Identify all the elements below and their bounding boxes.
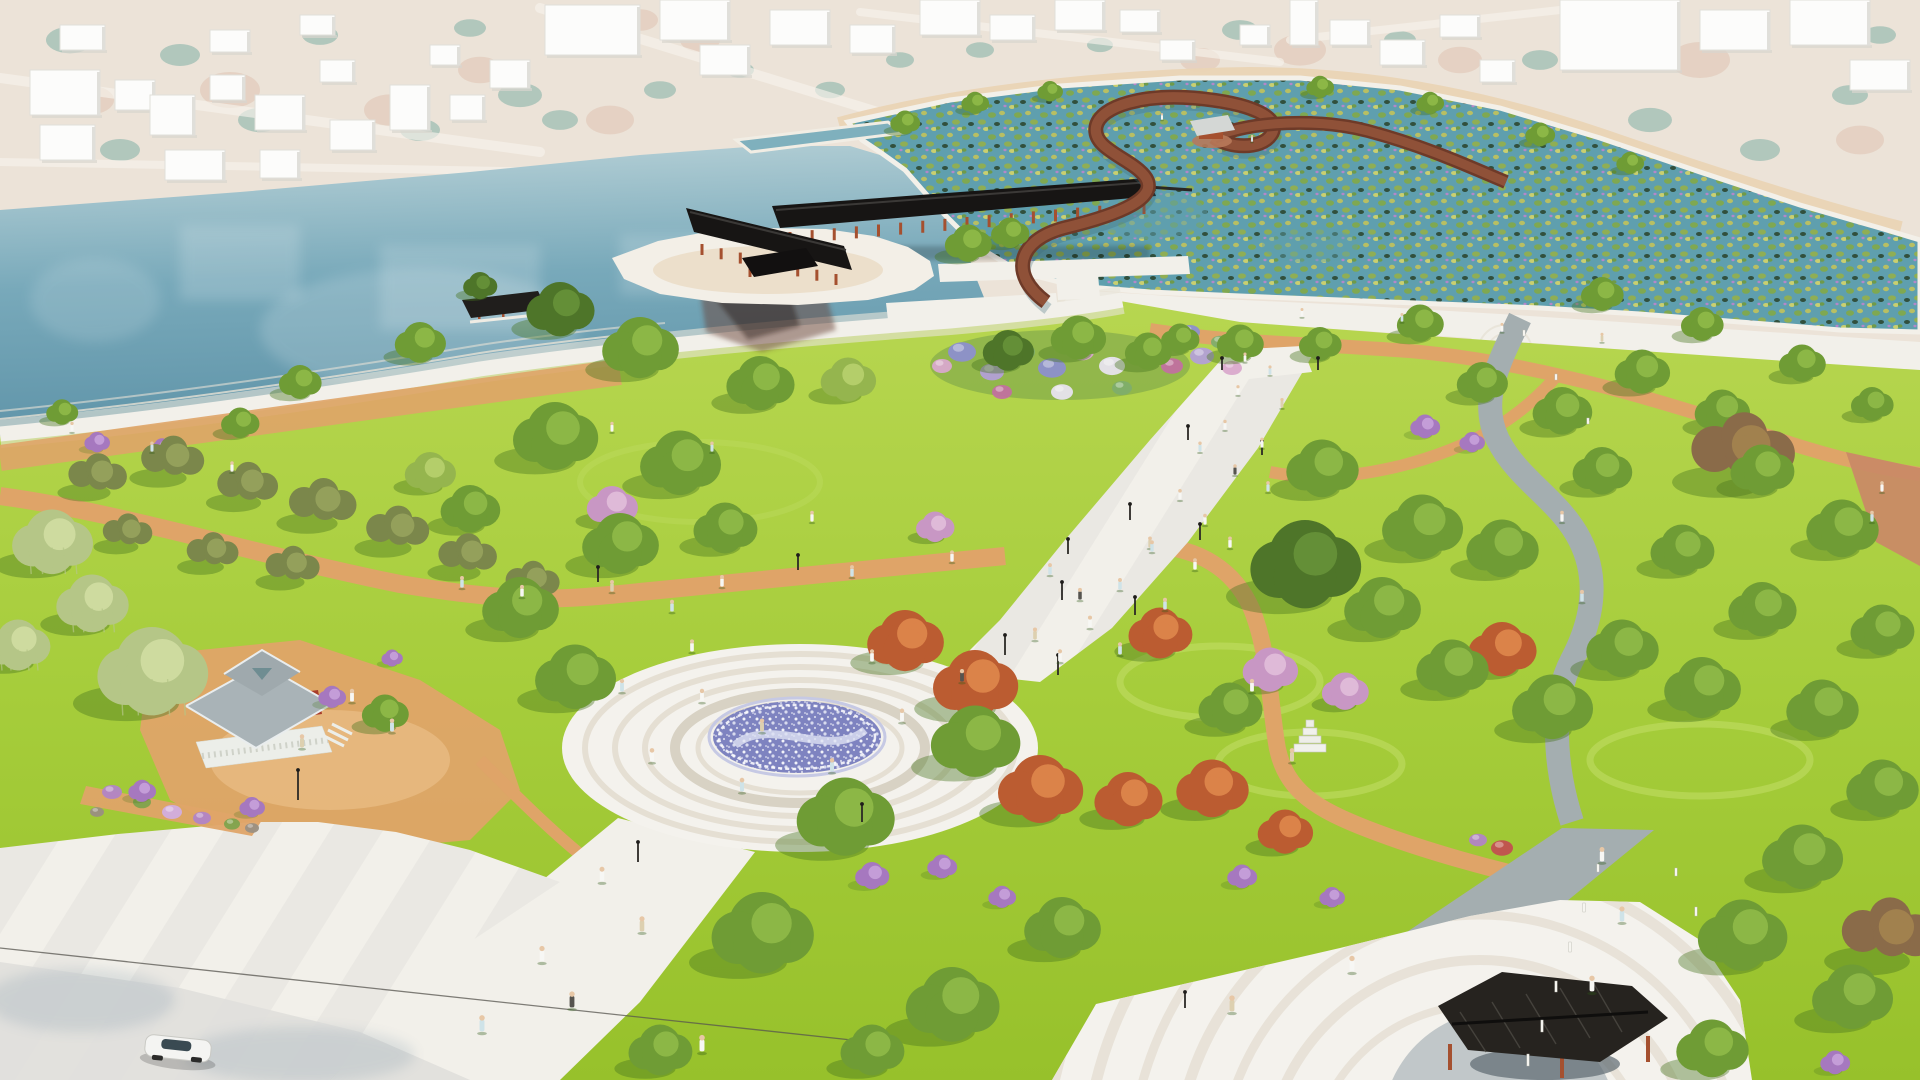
tree-canopy-highlight (1121, 779, 1148, 806)
person-head (1033, 627, 1037, 631)
city-building (150, 95, 195, 135)
pavilion-column (701, 244, 704, 255)
person-shadow (1202, 525, 1209, 527)
person-shadow (668, 612, 675, 614)
se-pavilion-post (1560, 1056, 1564, 1078)
city-vegetation-patch (644, 81, 676, 99)
city-building-side (427, 87, 430, 130)
person-body (1601, 335, 1604, 341)
person-head (900, 709, 904, 713)
person-head (1401, 313, 1404, 316)
bollard-light (1583, 903, 1585, 912)
person-head (1150, 540, 1154, 544)
tree-canopy-highlight (1694, 665, 1724, 695)
tree-canopy-highlight (1868, 392, 1885, 409)
tree-canopy-highlight (1374, 585, 1404, 615)
city-vegetation-patch (100, 139, 140, 161)
tree-canopy-highlight (1879, 909, 1914, 944)
person-shadow (1197, 452, 1203, 454)
person-body (1198, 444, 1201, 451)
lamp-head (1066, 537, 1070, 541)
tree-canopy-highlight (391, 513, 415, 537)
person-body (760, 722, 764, 731)
city-building-side (747, 47, 750, 75)
person-shadow (1235, 395, 1241, 397)
person-head (460, 576, 464, 580)
person-shadow (1076, 600, 1083, 602)
city-building (770, 10, 830, 45)
person-head (610, 422, 613, 425)
person-head (1349, 956, 1354, 961)
person-head (870, 649, 874, 653)
bollard-light (1541, 1020, 1543, 1032)
person-head (1250, 679, 1254, 683)
tree-canopy-highlight (1239, 868, 1251, 880)
tree-canopy-highlight (1755, 589, 1782, 616)
person-body (1193, 561, 1196, 569)
tree-canopy-highlight (1422, 418, 1434, 430)
city-building-side (1677, 2, 1680, 70)
pond-open-water (1262, 227, 1358, 263)
person-head (1233, 464, 1237, 468)
tree-canopy-highlight (567, 653, 599, 685)
lamp-head (1133, 595, 1137, 599)
person-body (1033, 631, 1037, 640)
city-building-side (1907, 62, 1910, 90)
person-shadow (1347, 972, 1356, 975)
city-building-side (457, 47, 460, 65)
person-body (640, 921, 645, 932)
flower-bush-highlight (953, 344, 964, 352)
tree-canopy-highlight (1705, 1027, 1734, 1056)
tree-canopy-highlight (1294, 532, 1338, 576)
person-head (720, 575, 724, 579)
lamp-head (1183, 990, 1187, 994)
tree-canopy-highlight (1844, 973, 1876, 1005)
person-body (700, 1040, 705, 1052)
person-body (1260, 440, 1263, 447)
person-head (539, 946, 544, 951)
city-building-side (1767, 12, 1770, 50)
tree-canopy-highlight (415, 328, 435, 348)
tree-canopy-highlight (425, 458, 445, 478)
city-building-side (332, 17, 335, 35)
city-building (1160, 40, 1195, 60)
tree-canopy-highlight (868, 866, 881, 879)
city-building (390, 85, 430, 130)
tree-canopy-highlight (1596, 453, 1620, 477)
tree-canopy-highlight (1797, 350, 1815, 368)
city-building-side (827, 12, 830, 45)
person-shadow (868, 662, 875, 665)
person-body (600, 871, 604, 882)
flower-bush-highlight (92, 808, 98, 812)
tree-canopy-highlight (1003, 336, 1023, 356)
pavilion-column (855, 226, 858, 238)
person-body (1560, 514, 1563, 522)
tree-canopy-highlight (966, 715, 1001, 750)
person-head (390, 718, 394, 722)
person-shadow (697, 1052, 707, 1055)
tree-canopy-highlight (835, 788, 874, 827)
person-head (700, 689, 704, 693)
tree-canopy-highlight (1733, 909, 1768, 944)
person-shadow (1259, 448, 1265, 450)
park-render-image (0, 0, 1920, 1080)
city-building-side (1192, 42, 1195, 60)
person-body (1048, 566, 1051, 574)
pavilion-column (815, 270, 818, 281)
person-body (620, 682, 624, 691)
lamp-head (796, 553, 800, 557)
person-shadow (567, 1008, 577, 1011)
city-building-side (1512, 62, 1515, 82)
lamp-head (1220, 356, 1224, 360)
person-head (1161, 113, 1163, 115)
person-body (1870, 514, 1873, 522)
person-body (1118, 581, 1121, 589)
person-head (670, 600, 674, 604)
person-head (350, 689, 354, 693)
city-building-side (222, 152, 225, 180)
person-head (960, 669, 964, 673)
person-head (1198, 442, 1201, 445)
city-building (1330, 20, 1370, 45)
person-head (1243, 353, 1246, 356)
person-shadow (1869, 522, 1876, 524)
person-shadow (1242, 362, 1248, 364)
person-body (710, 444, 713, 451)
person-shadow (1299, 317, 1304, 319)
flower-bush-highlight (996, 386, 1004, 392)
bollard-light (1675, 868, 1677, 876)
tree-canopy-highlight (1072, 321, 1094, 343)
city-building-side (297, 152, 300, 178)
person-body (1078, 591, 1082, 599)
city-building (1240, 25, 1270, 45)
person-head (710, 442, 713, 445)
tree-canopy-highlight (1875, 611, 1900, 636)
tree-canopy-highlight (1544, 683, 1576, 715)
tree-canopy-highlight (464, 491, 488, 515)
person-body (350, 692, 354, 701)
city-building-side (1267, 27, 1270, 45)
flower-bush-highlight (1055, 386, 1064, 392)
person-body (570, 996, 575, 1007)
tree-canopy-highlight (718, 509, 743, 534)
tree-canopy-highlight (1415, 310, 1433, 328)
person-body (1163, 601, 1167, 609)
person-shadow (388, 732, 396, 735)
person-body (1350, 960, 1355, 971)
bollard-light (1695, 907, 1697, 916)
person-body (1237, 388, 1240, 395)
bollard-light (1527, 1054, 1529, 1066)
city-building (490, 60, 530, 88)
city-building-side (527, 62, 530, 88)
city-vegetation-patch (542, 110, 578, 130)
tree-canopy-highlight (753, 363, 780, 390)
city-building-side (1032, 17, 1035, 40)
tree-canopy-highlight (380, 700, 398, 718)
city-building (450, 95, 485, 120)
person-body (540, 950, 545, 961)
person-head (1268, 365, 1271, 368)
pavilion-column (833, 228, 836, 240)
city-building (1790, 0, 1870, 45)
person-head (1229, 995, 1234, 1000)
city-building-side (1422, 42, 1425, 65)
person-shadow (758, 732, 766, 735)
lamp-head (1186, 424, 1190, 428)
person-head (1118, 578, 1122, 582)
person-head (1148, 536, 1152, 540)
person-body (870, 653, 874, 662)
person-shadow (1617, 922, 1626, 925)
tree-canopy-highlight (1427, 95, 1438, 106)
city-building (1480, 60, 1515, 82)
flower-bush-highlight (247, 824, 253, 828)
tree-canopy-highlight (141, 639, 185, 683)
city-building (1120, 10, 1160, 32)
tree-canopy-highlight (1537, 126, 1549, 138)
tree-canopy-highlight (91, 460, 113, 482)
tree-canopy-highlight (296, 370, 313, 387)
person-shadow (1161, 610, 1168, 612)
person-shadow (1250, 142, 1254, 143)
tree-canopy-highlight (1627, 155, 1638, 166)
person-body (1600, 851, 1604, 861)
person-head (1193, 558, 1197, 562)
person-body (830, 762, 834, 772)
person-shadow (1559, 522, 1566, 524)
tree-canopy-highlight (85, 582, 114, 611)
city-vegetation-patch (454, 19, 486, 37)
person-shadow (719, 587, 726, 589)
lamp-head (1198, 522, 1202, 526)
tree-canopy-highlight (315, 486, 340, 511)
se-pavilion-post (1646, 1036, 1650, 1062)
person-body (1269, 368, 1272, 375)
person-shadow (348, 702, 356, 705)
tree-canopy-highlight (553, 289, 580, 316)
lamp-head (596, 565, 600, 569)
tree-canopy-highlight (166, 443, 190, 467)
tree-canopy-highlight (287, 553, 307, 573)
person-body (1118, 646, 1122, 655)
person-body (670, 603, 674, 611)
person-head (520, 585, 524, 589)
person-shadow (648, 762, 656, 765)
person-shadow (609, 592, 616, 594)
person-head (1251, 135, 1253, 137)
flower-bush-highlight (227, 819, 233, 823)
flower-bush-highlight (1116, 382, 1124, 388)
person-shadow (738, 792, 746, 795)
person-body (300, 738, 304, 747)
city-building-side (302, 97, 305, 130)
city-building-side (1867, 2, 1870, 45)
person-head (830, 758, 835, 763)
person-shadow (1056, 662, 1063, 665)
tree-canopy-highlight (476, 276, 489, 289)
person-body (1228, 540, 1231, 548)
person-body (1501, 325, 1504, 331)
person-shadow (1031, 640, 1038, 643)
tree-canopy-highlight (842, 363, 864, 385)
person-head (1560, 511, 1564, 515)
person-body (1880, 484, 1883, 492)
person-head (230, 461, 233, 464)
person-shadow (1047, 575, 1054, 577)
tree-canopy-highlight (672, 439, 704, 471)
tree-canopy-highlight (1143, 338, 1161, 356)
person-head (300, 734, 304, 738)
city-building (30, 70, 100, 115)
tree-canopy-highlight (1815, 687, 1844, 716)
city-vegetation-patch (1740, 139, 1780, 161)
person-shadow (958, 682, 966, 685)
tree-canopy-highlight (1315, 447, 1344, 476)
city-building (260, 150, 300, 178)
park-aerial-render (0, 0, 1920, 1080)
person-shadow (1399, 322, 1404, 324)
person-head (70, 422, 73, 425)
city-building (210, 30, 250, 52)
city-building-side (637, 7, 640, 55)
pavilion-column (988, 215, 991, 227)
city-building (1290, 0, 1318, 45)
person-shadow (709, 452, 715, 454)
person-body (1590, 980, 1595, 991)
city-building (990, 15, 1035, 40)
city-building-side (372, 122, 375, 150)
person-shadow (1587, 992, 1597, 995)
city-building-side (892, 27, 895, 53)
city-building (545, 5, 640, 55)
person-body (230, 464, 233, 471)
city-building (320, 60, 355, 82)
flower-bush-highlight (936, 360, 944, 366)
pavilion-column (899, 223, 902, 235)
se-pavilion-post (1448, 1044, 1452, 1070)
person-body (690, 643, 694, 652)
pavilion-column (1054, 210, 1057, 222)
city-building-side (102, 27, 105, 50)
person-shadow (1499, 332, 1504, 334)
tree-canopy-highlight (236, 412, 251, 427)
city-building (700, 45, 750, 75)
city-building-side (192, 97, 195, 135)
tree-canopy-highlight (1235, 330, 1253, 348)
person-head (1619, 906, 1624, 911)
person-head (1880, 481, 1884, 485)
tree-canopy-highlight (1340, 678, 1358, 696)
person-body (1281, 401, 1284, 408)
person-body (810, 514, 813, 522)
person-head (1290, 748, 1295, 753)
bollard-light (1597, 864, 1599, 872)
tree-canopy-highlight (1329, 890, 1339, 900)
person-head (1589, 976, 1594, 981)
tree-canopy-highlight (1698, 312, 1715, 329)
person-body (720, 578, 723, 586)
person-shadow (949, 562, 956, 564)
city-building-side (92, 127, 95, 160)
lamp-head (1316, 356, 1320, 360)
person-shadow (898, 722, 906, 725)
lamp-head (860, 802, 864, 806)
tree-canopy-highlight (207, 539, 226, 558)
tree-canopy-highlight (1615, 627, 1644, 656)
person-head (1260, 438, 1263, 441)
pavilion-column (1032, 211, 1035, 223)
tree-canopy-highlight (546, 411, 580, 445)
city-vegetation-patch (160, 44, 200, 66)
person-head (479, 1015, 485, 1021)
tree-canopy-highlight (942, 977, 979, 1014)
person-head (569, 991, 574, 996)
tree-canopy-highlight (1279, 815, 1301, 837)
person-body (1290, 752, 1294, 762)
person-body (650, 752, 654, 762)
person-head (1501, 323, 1504, 326)
tree-canopy-highlight (1675, 531, 1700, 556)
tree-canopy-highlight (1316, 332, 1333, 349)
tree-canopy-highlight (865, 1031, 890, 1056)
person-shadow (1248, 692, 1256, 695)
tree-canopy-highlight (1832, 1054, 1844, 1066)
tree-canopy-highlight (1755, 451, 1780, 476)
lamp-head (1128, 502, 1132, 506)
person-head (1178, 489, 1182, 493)
person-head (1203, 514, 1207, 518)
person-body (460, 579, 463, 587)
person-body (1088, 619, 1092, 628)
flower-bush-highlight (106, 786, 114, 792)
tree-canopy-highlight (390, 652, 398, 660)
person-head (1088, 616, 1092, 620)
person-body (1401, 315, 1404, 321)
tree-canopy-highlight (931, 516, 946, 531)
person-head (1280, 398, 1283, 401)
person-shadow (1222, 430, 1228, 432)
person-shadow (698, 702, 706, 705)
city-building (1055, 0, 1105, 30)
flower-bush-highlight (1472, 835, 1479, 840)
tree-canopy-highlight (966, 659, 1000, 693)
city-building (40, 125, 95, 160)
tree-canopy-highlight (461, 540, 483, 562)
person-head (810, 511, 814, 515)
bollard-light (1569, 942, 1571, 952)
person-head (1580, 590, 1584, 594)
tree-canopy-highlight (1223, 689, 1248, 714)
person-shadow (1116, 655, 1123, 658)
pier (1056, 274, 1100, 300)
person-body (390, 722, 394, 731)
flower-bush-highlight (196, 813, 203, 818)
person-shadow (1288, 762, 1296, 765)
person-head (1048, 563, 1052, 567)
person-body (611, 425, 614, 432)
tree-canopy-highlight (1047, 84, 1057, 94)
person-head (950, 550, 954, 554)
person-body (1161, 115, 1163, 120)
tree-canopy-highlight (11, 626, 36, 651)
person-head (740, 778, 745, 783)
person-shadow (1149, 552, 1156, 554)
